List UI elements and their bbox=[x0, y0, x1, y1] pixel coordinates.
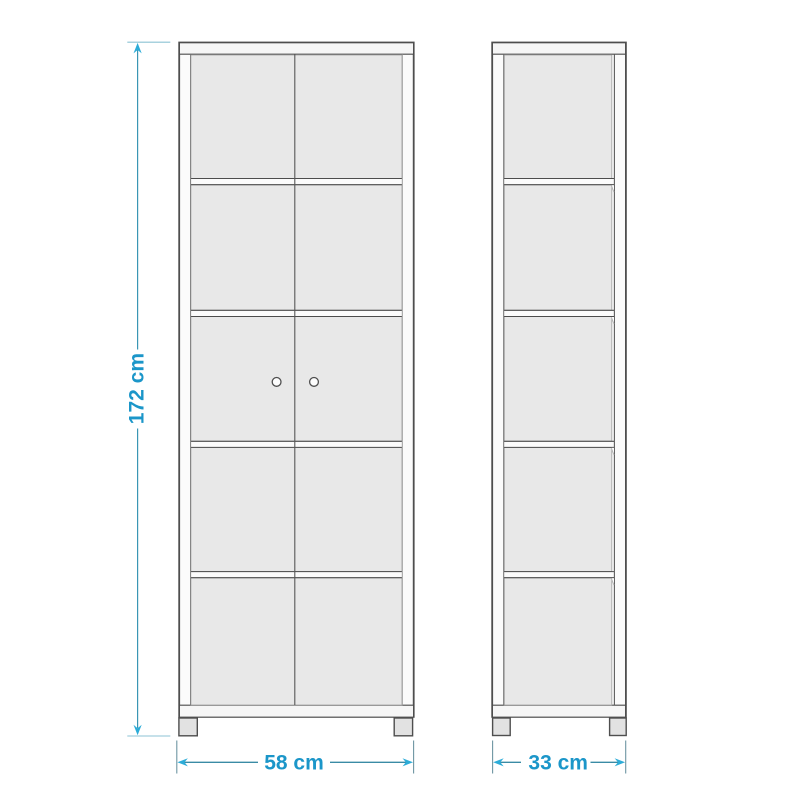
svg-text:172 cm: 172 cm bbox=[125, 353, 148, 424]
svg-text:58 cm: 58 cm bbox=[264, 752, 324, 775]
svg-text:33 cm: 33 cm bbox=[528, 752, 588, 775]
